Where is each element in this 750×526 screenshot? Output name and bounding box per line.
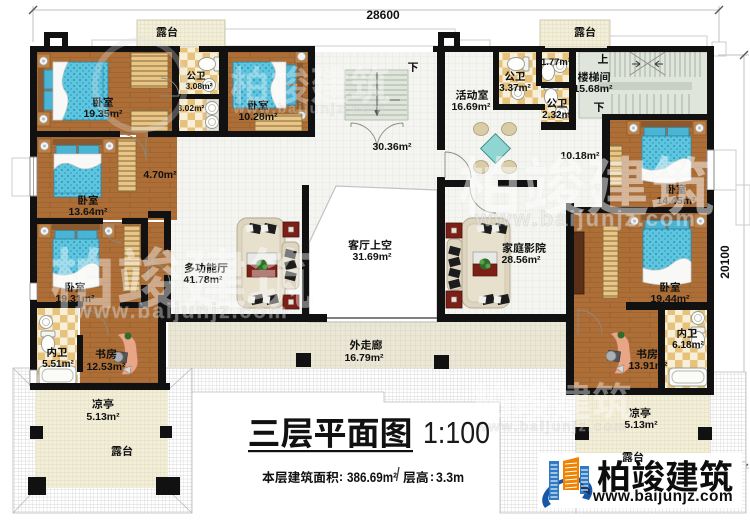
svg-text:30.36m²: 30.36m² [372,141,412,153]
svg-text:28600: 28600 [366,8,400,22]
svg-text:6.18m²: 6.18m² [672,340,704,351]
svg-text:16.79m²: 16.79m² [344,352,384,364]
svg-text:5.13m²: 5.13m² [624,419,658,431]
svg-text::: : [430,469,434,484]
svg-text::: : [339,469,343,484]
svg-text:www.baijunjz.com: www.baijunjz.com [475,418,629,434]
svg-text:31.69m²: 31.69m² [352,251,392,263]
svg-text:13.64m²: 13.64m² [68,206,108,218]
svg-text:13.91m²: 13.91m² [628,360,668,372]
svg-text:1.77m²: 1.77m² [541,57,571,68]
svg-text:3.3m: 3.3m [436,470,464,485]
svg-text:3.37m²: 3.37m² [499,83,531,94]
svg-text:3.08m²: 3.08m² [186,81,213,91]
svg-text:20100: 20100 [718,245,732,279]
svg-text:5.51m²: 5.51m² [42,359,74,370]
svg-text:19.44m²: 19.44m² [650,293,690,305]
svg-text:1:100: 1:100 [423,415,490,450]
svg-text:www.baijunjz.com: www.baijunjz.com [592,488,733,505]
svg-text:www.baijunjz.com: www.baijunjz.com [74,300,288,323]
svg-text:16.69m²: 16.69m² [451,101,491,113]
svg-text:4.70m²: 4.70m² [143,169,177,181]
svg-text:386.69m²: 386.69m² [347,470,397,485]
svg-text:www.baijunjz.com: www.baijunjz.com [474,206,697,231]
svg-text:15.68m²: 15.68m² [573,83,613,95]
svg-text:28.56m²: 28.56m² [501,254,541,266]
svg-text:www.baijunjz.com: www.baijunjz.com [233,100,387,116]
svg-text:2.32m²: 2.32m² [542,110,574,121]
svg-text:12.53m²: 12.53m² [86,361,126,373]
svg-text:5.13m²: 5.13m² [86,411,120,423]
